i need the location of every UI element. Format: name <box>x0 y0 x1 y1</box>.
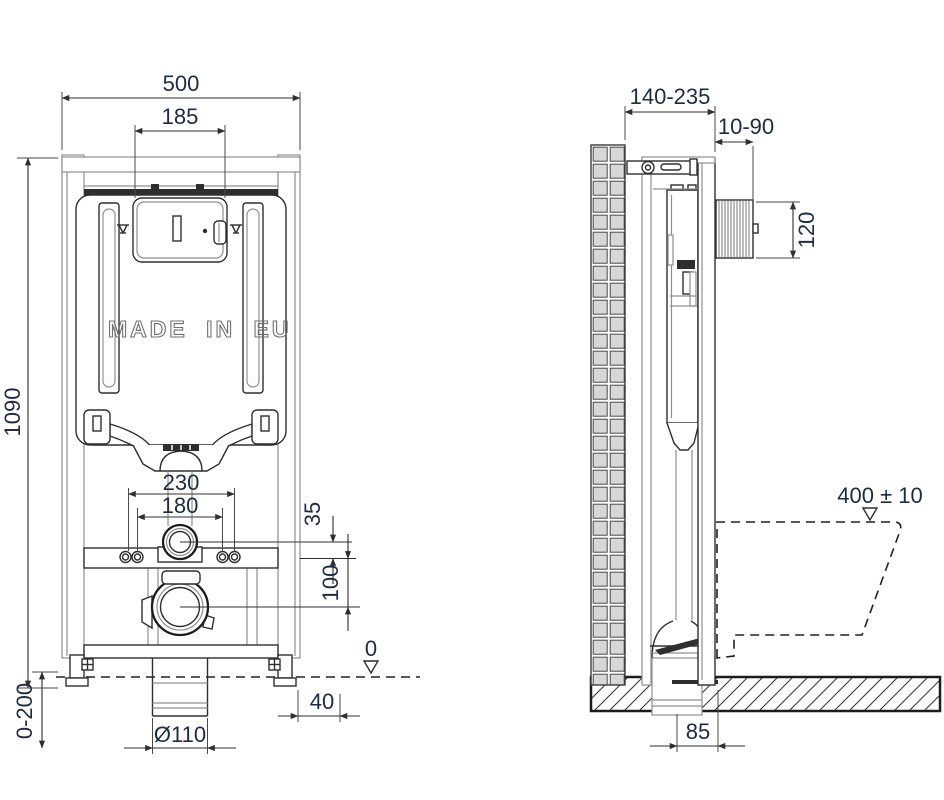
svg-text:100: 100 <box>318 565 343 602</box>
svg-text:Ø110: Ø110 <box>154 722 206 747</box>
flush-rod-slot <box>173 216 181 241</box>
protection-box <box>716 200 758 258</box>
datum-triangle-icon <box>364 661 378 673</box>
lower-rail <box>84 645 278 658</box>
svg-text:85: 85 <box>686 719 710 744</box>
svg-text:120: 120 <box>794 212 819 249</box>
dim-seat-height: 400 ± 10 <box>837 483 922 520</box>
dim-floor-adjust: 0-200 <box>12 672 58 748</box>
installation-frame-drawing: MADE IN EU <box>0 0 944 800</box>
svg-text:230: 230 <box>163 470 200 495</box>
front-view: MADE IN EU <box>56 155 420 716</box>
svg-text:180: 180 <box>162 493 199 518</box>
side-view <box>591 145 940 715</box>
waste-pipe-front <box>153 658 208 716</box>
dim-frame-depth: 140-235 <box>625 84 715 152</box>
top-crossbar <box>62 157 300 196</box>
svg-text:10-90: 10-90 <box>718 114 774 139</box>
toilet-bowl-outline <box>717 522 901 658</box>
svg-text:140-235: 140-235 <box>630 84 711 109</box>
dim-opening-width: 185 <box>135 104 225 198</box>
svg-text:185: 185 <box>162 104 199 129</box>
svg-text:0: 0 <box>365 636 377 661</box>
dim-box-height: 120 <box>756 202 819 258</box>
valve-clip <box>214 221 226 244</box>
waste-outlet <box>142 571 214 635</box>
made-in-eu-text: MADE IN EU <box>108 316 291 342</box>
pin-dot <box>203 229 207 233</box>
cistern-side <box>667 185 699 620</box>
svg-text:40: 40 <box>310 689 334 714</box>
dim-frame-height: 1090 <box>0 158 58 688</box>
svg-text:0-200: 0-200 <box>12 683 37 739</box>
dim-edge-offset: 40 <box>278 689 360 722</box>
svg-text:400 ± 10: 400 ± 10 <box>837 483 922 508</box>
svg-text:500: 500 <box>163 71 200 96</box>
wall-anchor-bracket <box>627 159 697 175</box>
rear-rail <box>642 158 651 685</box>
svg-text:35: 35 <box>300 502 325 526</box>
inspection-opening <box>133 198 227 262</box>
dim-finish-range: 10-90 <box>715 114 774 200</box>
datum-triangle-icon <box>863 508 877 520</box>
waste-pipe-side <box>652 621 702 715</box>
datum-marker-floor: 0 <box>364 636 378 673</box>
svg-text:1090: 1090 <box>0 388 25 437</box>
adjustable-feet <box>66 655 296 686</box>
wall-section <box>591 145 625 685</box>
technical-drawing-page: MADE IN EU <box>0 0 944 800</box>
dim-waste-diameter: Ø110 <box>124 718 236 754</box>
